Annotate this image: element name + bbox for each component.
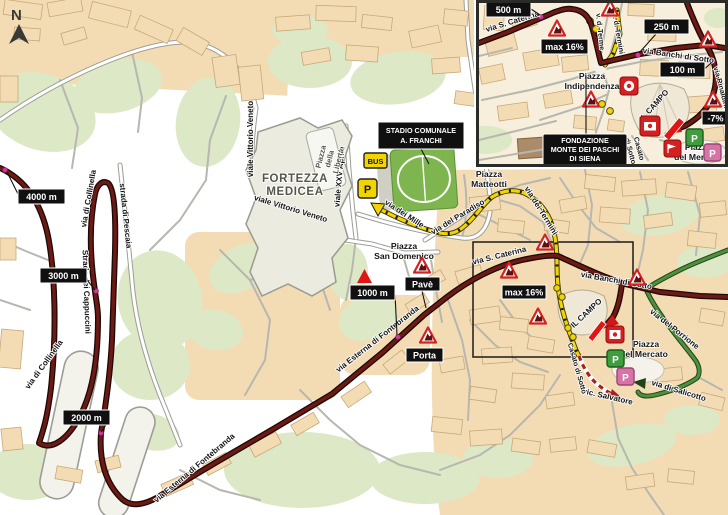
stadium-label-1: STADIO COMUNALE — [386, 126, 456, 135]
area-label-matteotti-2: Matteotti — [471, 179, 507, 189]
hazard-porta: Porta — [413, 351, 437, 361]
street-label-pescaia: strada di Pescaia — [118, 183, 134, 250]
inset-marker-100m: 100 m — [670, 65, 696, 75]
warning-triangle-icon — [549, 21, 565, 36]
inset-foundation-3: DI SIENA — [569, 154, 600, 163]
inset-max-gradient: max 16% — [545, 42, 584, 52]
area-label-san-domenico-2: San Domenico — [374, 251, 434, 261]
marker-3000m: 3000 m — [48, 271, 79, 281]
north-label: N — [11, 7, 22, 24]
area-label-matteotti-1: Piazza — [476, 169, 502, 179]
parking-yellow-label: P — [364, 184, 371, 196]
finish-flag-icon — [664, 140, 681, 157]
parking-pink-label: P — [709, 149, 716, 160]
inset-descent-gradient: -7% — [707, 114, 723, 124]
arrival-icon — [640, 116, 660, 136]
hazard-max-gradient: max 16% — [505, 288, 544, 298]
siena-route-map: viale Vittorio Veneto viale Vittorio Ven… — [0, 0, 728, 515]
inset-foundation-2: MONTE DEI PASCHI — [551, 145, 620, 154]
area-label-fortezza-2: MEDICEA — [266, 186, 323, 198]
arrival-icon — [606, 326, 624, 343]
street-label-cappuccini: Strada dei Cappuccini — [81, 250, 93, 334]
parking-pink-label: P — [622, 373, 629, 384]
inset-marker-500m: 500 m — [496, 5, 522, 15]
marker-1000m: 1000 m — [357, 288, 388, 298]
bus-icon-label: BUS — [368, 157, 384, 166]
area-label-mercato-2: del Mercato — [620, 349, 668, 359]
finish-detail-inset: via S. Caterina v. d. Terme v. d. Termin… — [476, 0, 728, 167]
street-label-vittorio-veneto-n: viale Vittorio Veneto — [246, 101, 255, 177]
area-label-mercato-1: Piazza — [633, 339, 659, 349]
parking-green-label: P — [691, 134, 698, 145]
parking-green-label: P — [612, 355, 619, 366]
inset-map: via S. Caterina v. d. Terme v. d. Termin… — [479, 3, 725, 164]
area-label-fortezza-1: FORTEZZA — [262, 173, 328, 185]
warning-triangle-icon — [602, 3, 618, 16]
marker-4000m: 4000 m — [26, 192, 57, 202]
inset-foundation-1: FONDAZIONE — [561, 136, 609, 145]
area-label-san-domenico-1: Piazza — [391, 241, 417, 251]
press-zone-icon — [620, 77, 638, 95]
inset-label-indipendenza-1: Piazza — [579, 71, 605, 81]
inset-marker-250m: 250 m — [654, 22, 680, 32]
foundation-building — [517, 137, 545, 159]
inset-label-indipendenza-2: Indipendenza — [565, 81, 620, 91]
street-label-di-collinella-2: via di Collinella — [23, 338, 65, 391]
marker-2000m: 2000 m — [71, 413, 102, 423]
stadium-label-2: A. FRANCHI — [400, 136, 442, 145]
hazard-pave: Pavè — [412, 280, 433, 290]
